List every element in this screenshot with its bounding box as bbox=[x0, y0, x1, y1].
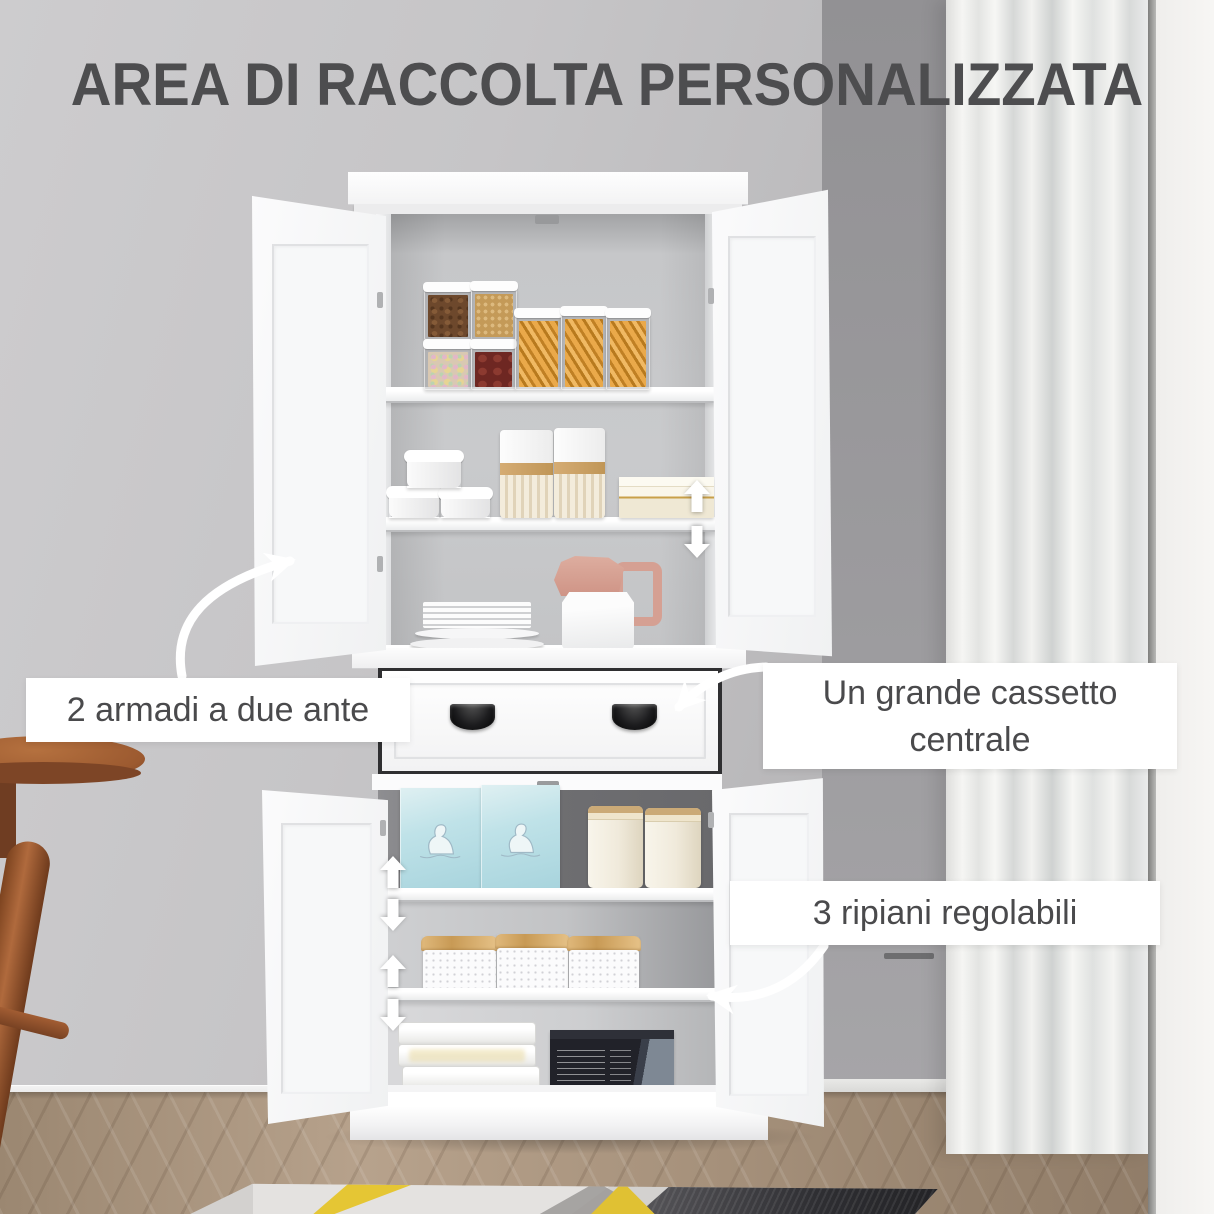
container-lid bbox=[560, 306, 608, 316]
plastic-tray bbox=[398, 1044, 536, 1067]
hinge bbox=[377, 292, 383, 308]
upper-shelf-2 bbox=[378, 517, 718, 532]
canister-body bbox=[497, 948, 568, 990]
lower-shelf-1 bbox=[378, 888, 718, 902]
penne-pasta bbox=[565, 319, 603, 387]
container-lid bbox=[423, 339, 473, 349]
candy-container bbox=[424, 347, 472, 390]
hinge bbox=[708, 812, 714, 828]
canister-body bbox=[423, 950, 496, 990]
container-lid bbox=[423, 282, 473, 292]
wood-lid bbox=[495, 934, 570, 949]
curtain-panel-right bbox=[1156, 0, 1214, 1214]
cabinet-mid-beam bbox=[352, 648, 746, 669]
canister-stripes bbox=[500, 475, 553, 518]
cabinet-plinth bbox=[350, 1092, 768, 1140]
interior-shadow bbox=[390, 214, 445, 658]
lower-right-door bbox=[712, 776, 824, 1128]
door-panel bbox=[281, 823, 372, 1094]
drawer-groove bbox=[394, 683, 706, 759]
canister-top bbox=[554, 428, 605, 462]
shelf-adjust-up-arrow-icon bbox=[380, 856, 406, 888]
door-catch bbox=[535, 215, 559, 224]
shelf-adjust-down-arrow-icon bbox=[684, 526, 710, 558]
callout-two-door-cabinets: 2 armadi a due ante bbox=[26, 678, 410, 742]
carafe-body bbox=[562, 592, 634, 650]
chickpeas bbox=[475, 294, 513, 337]
door-panel bbox=[729, 813, 810, 1096]
container-lid bbox=[470, 339, 517, 349]
textured-canister bbox=[497, 934, 568, 990]
textured-canister bbox=[423, 936, 496, 990]
drawer-handle bbox=[612, 704, 657, 730]
tub-body bbox=[407, 462, 461, 488]
callout-adjustable-shelves: 3 ripiani regolabili bbox=[730, 881, 1160, 945]
chickpea-container bbox=[471, 289, 517, 340]
door-panel bbox=[272, 244, 369, 624]
white-tub bbox=[441, 487, 490, 518]
shelf-adjust-down-arrow-icon bbox=[380, 999, 406, 1031]
walnuts bbox=[428, 295, 468, 337]
wood-lid bbox=[567, 936, 641, 951]
shelf-adjust-up-arrow-icon bbox=[684, 480, 710, 512]
door-panel bbox=[728, 236, 816, 618]
white-tub bbox=[389, 486, 439, 518]
bamboo-band bbox=[554, 462, 605, 474]
product-infographic-scene: 2 armadi a due ante Un grande cassetto c… bbox=[0, 0, 1214, 1214]
plastic-tray bbox=[398, 1022, 536, 1045]
ceramic-canister bbox=[554, 428, 605, 518]
walnut-container bbox=[424, 290, 472, 340]
canister-top bbox=[500, 430, 553, 463]
canister-body bbox=[569, 950, 639, 990]
penne-pasta bbox=[519, 321, 558, 387]
textured-canister bbox=[569, 936, 639, 990]
callout-central-drawer: Un grande cassetto centrale bbox=[763, 663, 1177, 769]
polar-bear-box bbox=[481, 785, 560, 889]
carafe bbox=[554, 554, 650, 650]
wood-lid bbox=[421, 936, 498, 951]
polar-bear-illustration bbox=[496, 808, 546, 870]
upper-left-door bbox=[252, 194, 386, 666]
upper-right-door bbox=[710, 186, 832, 660]
curtain-gap bbox=[1148, 0, 1156, 1214]
carafe-top bbox=[554, 556, 624, 596]
page-title: AREA DI RACCOLTA PERSONALIZZATA bbox=[36, 50, 1177, 119]
cream-canister bbox=[645, 808, 701, 888]
hinge bbox=[708, 288, 714, 304]
hinge bbox=[380, 820, 386, 836]
tub-body bbox=[441, 499, 490, 518]
ceramic-canister bbox=[500, 430, 553, 518]
polar-bear-illustration bbox=[415, 810, 466, 871]
cream-canister bbox=[588, 806, 643, 888]
dates bbox=[475, 352, 512, 387]
dates-container bbox=[471, 347, 516, 390]
container-lid bbox=[470, 281, 518, 291]
pasta-jar bbox=[606, 316, 650, 390]
pasta-jar bbox=[561, 314, 607, 390]
plastic-tray-stack bbox=[398, 1022, 536, 1092]
pasta-jar bbox=[515, 316, 562, 390]
small-plates bbox=[423, 602, 531, 628]
container-lid bbox=[605, 308, 651, 318]
sheer-curtain bbox=[946, 0, 1150, 1154]
wall-outlet bbox=[884, 953, 934, 959]
drawer-handle bbox=[450, 704, 495, 730]
cabinet-crown bbox=[348, 172, 748, 204]
plate-stack bbox=[417, 602, 537, 650]
shelf-adjust-down-arrow-icon bbox=[380, 899, 406, 931]
drawer-front bbox=[382, 671, 718, 771]
lower-shelf-2 bbox=[378, 988, 718, 1002]
white-tub bbox=[407, 450, 461, 488]
canister-stripes bbox=[554, 474, 605, 518]
penne-pasta bbox=[610, 321, 646, 387]
bamboo-band bbox=[500, 463, 553, 474]
shelf-adjust-up-arrow-icon bbox=[380, 955, 406, 987]
container-lid bbox=[514, 308, 563, 318]
hinge bbox=[377, 556, 383, 572]
lower-left-door bbox=[262, 788, 388, 1124]
tub-body bbox=[389, 498, 439, 518]
polar-bear-box bbox=[400, 788, 481, 889]
candy bbox=[428, 352, 468, 387]
